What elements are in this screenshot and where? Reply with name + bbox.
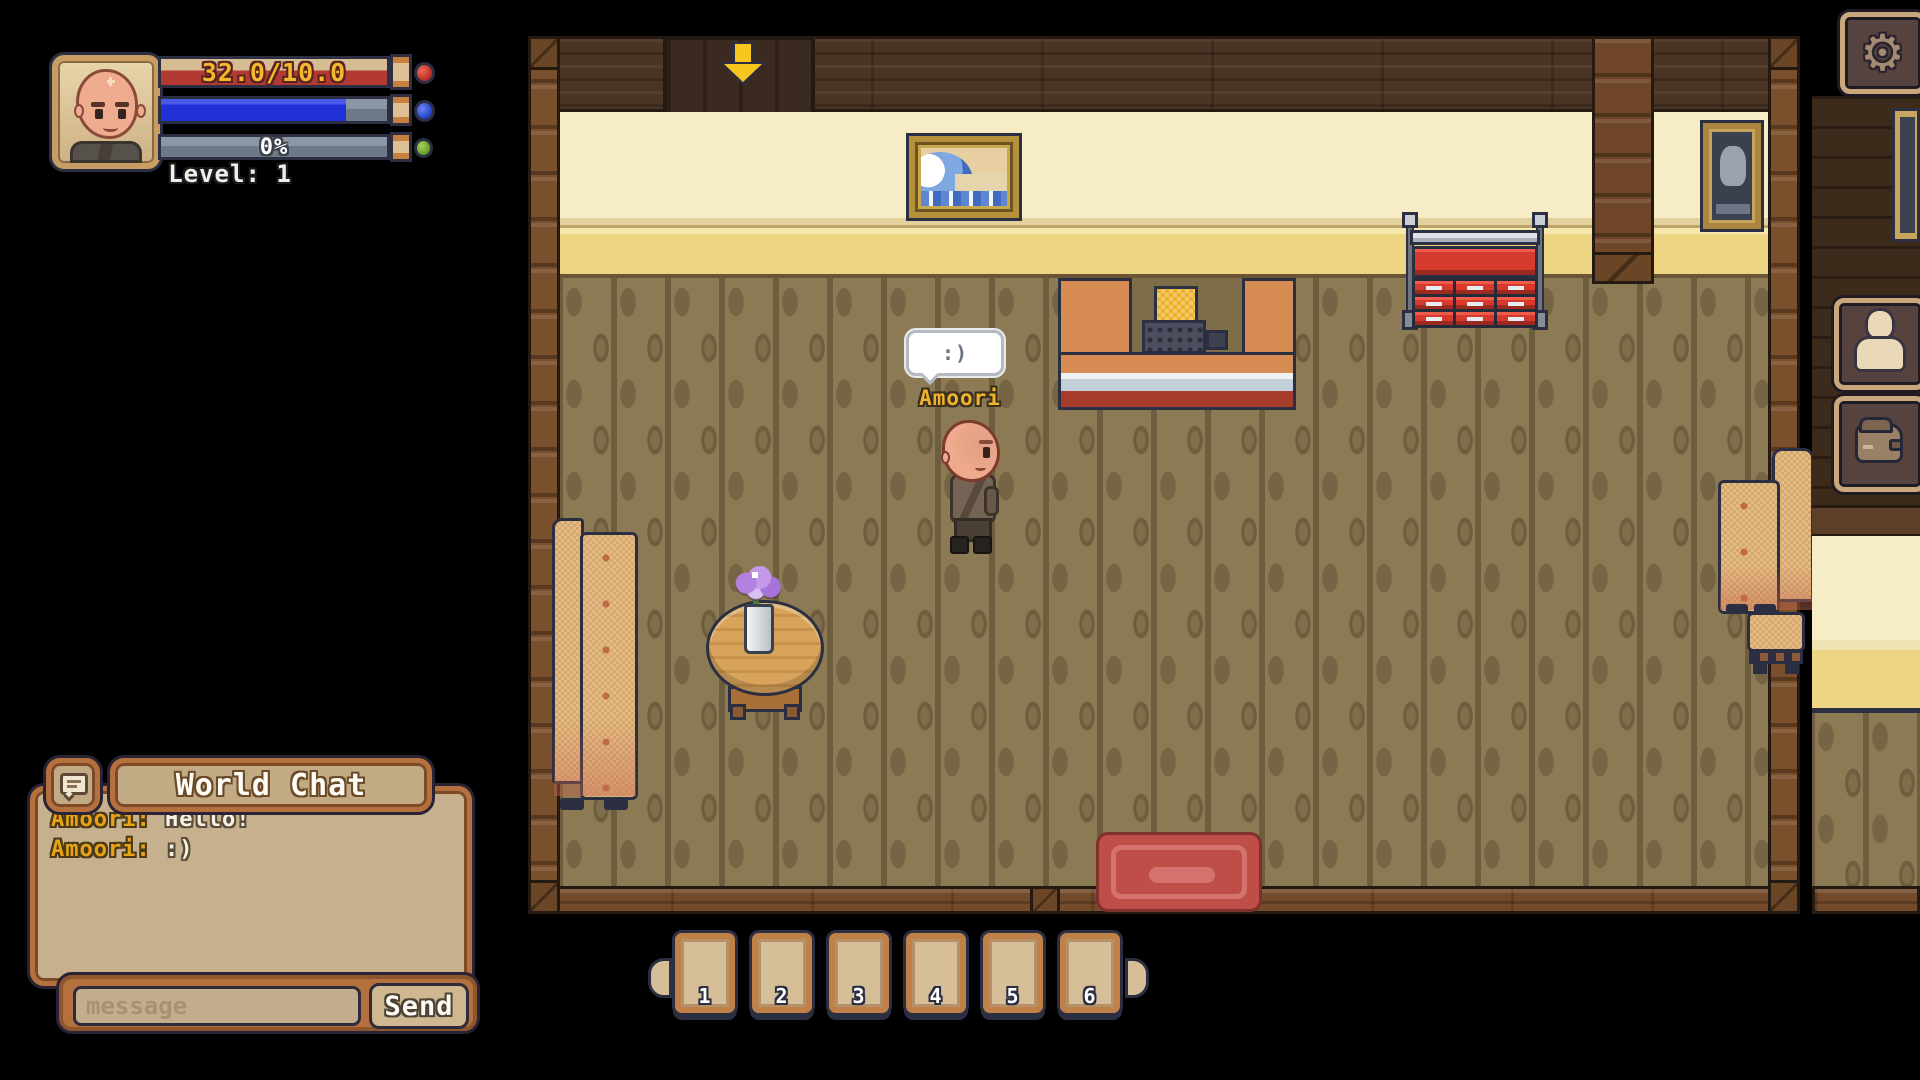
character-button[interactable] [1834, 298, 1920, 390]
wave-painting [906, 133, 1022, 221]
chat-bubble-icon [60, 773, 88, 795]
chat-message-text: :) [165, 837, 194, 862]
corner-block [528, 36, 560, 70]
hotbar-left-cap [648, 958, 672, 998]
second-room-wall-band [1812, 505, 1920, 536]
red-tool-cabinet [1402, 206, 1548, 330]
wall-pillar [1592, 36, 1654, 284]
second-room-floor [1812, 713, 1920, 886]
portrait-painting [1700, 120, 1764, 232]
reception-desk [1058, 278, 1296, 410]
cash-register [1142, 320, 1206, 354]
mana-orb-icon [414, 100, 435, 122]
wall-trim [560, 218, 1768, 228]
bag-icon [1855, 415, 1905, 467]
second-room-bottom-wall [1812, 886, 1920, 914]
desk-left-arm [1058, 278, 1132, 356]
register-arm [1206, 330, 1228, 350]
hotbar-slot-number: 6 [1060, 985, 1120, 1007]
corner-block [528, 880, 560, 914]
down-arrow-icon [720, 42, 766, 86]
couch-left [552, 518, 638, 810]
second-room-wall-trim [1812, 640, 1920, 650]
chat-input[interactable] [73, 986, 361, 1026]
cabinet-drawer [1456, 297, 1494, 310]
ottoman [1747, 612, 1805, 674]
desk-front [1058, 352, 1296, 410]
xp-bar-cap [390, 132, 412, 162]
player-character [936, 420, 1008, 560]
hotbar-slot-4[interactable]: 4 [903, 930, 969, 1016]
second-room-wall-upper [1812, 536, 1920, 640]
cabinet-drawer [1456, 312, 1494, 325]
xp-orb-icon [414, 138, 433, 158]
cabinet-drawer [1497, 312, 1535, 325]
chat-panel: Amoori: Hello! Amoori: :) [30, 786, 472, 986]
hotbar-slot-1[interactable]: 1 [672, 930, 738, 1016]
world-chat-title: World Chat [176, 768, 367, 803]
avatar-portrait[interactable] [52, 55, 160, 169]
send-button[interactable]: Send [369, 983, 469, 1029]
cabinet-drawer [1497, 281, 1535, 294]
mana-bar [158, 96, 390, 124]
pillar-base-block [1592, 252, 1654, 284]
cabinet-drawer [1415, 281, 1453, 294]
hotbar-slot-2[interactable]: 2 [749, 930, 815, 1016]
hotbar-slot-number: 5 [983, 985, 1043, 1007]
speech-text: :) [909, 333, 1001, 373]
send-button-label: Send [384, 991, 453, 1022]
hotbar-slot-3[interactable]: 3 [826, 930, 892, 1016]
character-icon [1855, 311, 1905, 371]
flower-vase [728, 560, 788, 656]
game-screen: :) Amoori 32.0/ [0, 0, 1920, 1080]
hotbar-slot-5[interactable]: 5 [980, 930, 1046, 1016]
desk-right-arm [1242, 278, 1296, 356]
gear-icon: ⚙ [1860, 24, 1906, 82]
second-room-strip [1812, 0, 1920, 1080]
hotbar-right-cap [1125, 958, 1149, 998]
player-head [942, 420, 1000, 482]
cutoff-painting [1892, 108, 1920, 242]
mana-bar-cap [390, 94, 412, 126]
xp-text: 0% [158, 134, 390, 160]
inventory-button[interactable] [1834, 396, 1920, 492]
hotbar-slot-number: 4 [906, 985, 966, 1007]
chat-message-author: Amoori: [51, 837, 151, 862]
health-text: 32.0/10.0 [158, 56, 390, 88]
cabinet-drawer [1456, 281, 1494, 294]
desk-chair [1154, 286, 1198, 324]
player-nametag: Amoori [880, 386, 1040, 410]
health-bar-cap [390, 54, 412, 90]
avatar-head [76, 69, 138, 139]
hotbar-slot-6[interactable]: 6 [1057, 930, 1123, 1016]
couch-right [1718, 448, 1814, 614]
cabinet-drawer [1497, 297, 1535, 310]
corner-block [1768, 36, 1800, 70]
hotbar-slot-number: 1 [675, 985, 735, 1007]
red-rug [1096, 832, 1262, 912]
settings-button[interactable]: ⚙ [1840, 12, 1920, 94]
room-wall-lower [560, 228, 1768, 278]
doorway [663, 36, 815, 116]
health-orb-icon [414, 62, 435, 84]
chat-message: Amoori: :) [51, 835, 451, 865]
world-chat-tab[interactable]: World Chat [110, 758, 432, 812]
cabinet-drawer [1415, 297, 1453, 310]
level-label: Level: 1 [140, 160, 320, 188]
second-room-wall-lower [1812, 650, 1920, 708]
hotbar-slot-number: 3 [829, 985, 889, 1007]
avatar-body [70, 141, 142, 163]
cabinet-drawer [1415, 312, 1453, 325]
seam-block [1030, 886, 1060, 914]
corner-block [1768, 880, 1800, 914]
chat-input-bar: Send [56, 972, 480, 1034]
speech-bubble: :) [906, 330, 1004, 376]
mana-fill [161, 99, 346, 121]
chat-toggle-button[interactable] [46, 758, 100, 812]
room-wall-upper [560, 112, 1768, 218]
hotbar-slot-number: 2 [752, 985, 812, 1007]
